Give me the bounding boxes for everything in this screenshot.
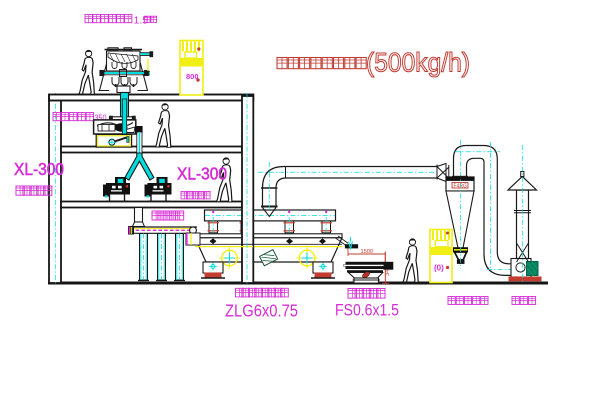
svg-text:XL-300: XL-300 (14, 159, 64, 179)
svg-text:1500: 1500 (361, 249, 373, 255)
svg-text:FS0.6x1.5: FS0.6x1.5 (335, 302, 399, 320)
svg-text:XL-300: XL-300 (177, 164, 227, 184)
svg-text:(0): (0) (434, 264, 444, 273)
svg-text:(500kg/h): (500kg/h) (366, 48, 470, 78)
svg-text:ZLG6x0.75: ZLG6x0.75 (225, 301, 298, 321)
svg-text:800: 800 (186, 72, 199, 81)
